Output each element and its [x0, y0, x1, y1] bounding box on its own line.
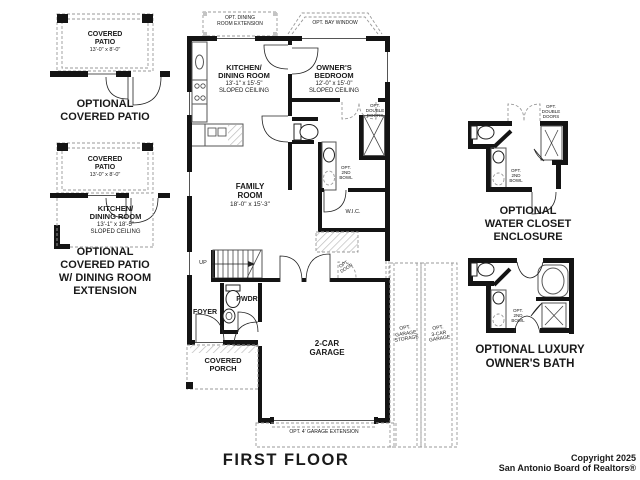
caption-patio-dining-extension: OPTIONAL COVERED PATIO W/ DINING ROOM EX… [28, 246, 182, 298]
family-room-label: FAMILY ROOM 18'-0" x 15'-3" [218, 183, 282, 208]
caption2-line4: EXTENSION [28, 285, 182, 298]
patio2-name-line1: COVERED [55, 156, 155, 164]
caption4-line1: OPTIONAL LUXURY [450, 344, 610, 358]
opt-double-doors-wc-label: OPT. DOUBLE DOORS [537, 104, 565, 119]
caption-optional-covered-patio: OPTIONAL COVERED PATIO [38, 98, 172, 124]
up-label: UP [196, 260, 210, 266]
kitchen-dims: 13'-1" x 15'-5" [208, 81, 280, 88]
opt-double-doors-main-label: OPT. DOUBLE DOORS [361, 103, 389, 118]
patio1-name-line1: COVERED [55, 31, 155, 39]
copyright-line1: Copyright 2025 [420, 453, 636, 463]
kitchen-line2: DINING ROOM [208, 72, 280, 80]
patio2-dims: 13'-0" x 8'-0" [55, 172, 155, 178]
patio2-name-line2: PATIO [55, 164, 155, 172]
bedroom-ceiling: SLOPED CEILING [298, 88, 370, 95]
caption3-line1: OPTIONAL [462, 205, 594, 218]
o2b-main-line3: BOWL [334, 175, 358, 180]
caption1-line2: COVERED PATIO [38, 111, 172, 124]
foyer-label: FOYER [188, 309, 222, 317]
owners-bedroom-label: OWNER'S BEDROOM 12'-0" x 15'-0" SLOPED C… [298, 64, 370, 94]
opt-bay-window-label: OPT. BAY WINDOW [296, 21, 374, 27]
opt-2nd-bowl-wc-label: OPT. 2ND BOWL [504, 168, 528, 183]
caption1-line1: OPTIONAL [38, 98, 172, 111]
covered-porch-label: COVERED PORCH [194, 357, 252, 374]
floorplan-page: .w{fill:#141414;} .tn{stroke:#555;stroke… [0, 0, 640, 480]
o2b-wc-line3: BOWL [504, 178, 528, 183]
ext-kitchen-label: KITCHEN/ DINING ROOM 13'-1" x 18'-5" SLO… [58, 205, 173, 235]
patio1-name-line2: PATIO [55, 39, 155, 47]
page-title: FIRST FLOOR [206, 451, 366, 469]
opt-dining-ext-line2: ROOM EXTENSION [203, 22, 277, 28]
caption4-line2: OWNER'S BATH [450, 358, 610, 372]
patio1-room-label: COVERED PATIO 13'-0" x 8'-0" [55, 31, 155, 53]
wic-label: W.I.C. [336, 209, 370, 215]
family-line2: ROOM [218, 192, 282, 201]
copyright-line2: San Antonio Board of Realtors® [420, 463, 636, 473]
caption2-line3: W/ DINING ROOM [28, 272, 182, 285]
family-dims: 18'-0" x 15'-3" [218, 201, 282, 208]
kitchen-dining-label: KITCHEN/ DINING ROOM 13'-1" x 15'-5" SLO… [208, 64, 280, 94]
o2b-lux-line3: BOWL [506, 318, 530, 323]
odd-wc-line3: DOORS [537, 114, 565, 119]
kitchen-ceiling: SLOPED CEILING [208, 88, 280, 95]
patio2-room-label: COVERED PATIO 13'-0" x 8'-0" [55, 156, 155, 178]
patio1-dims: 13'-0" x 8'-0" [55, 47, 155, 53]
porch-line2: PORCH [194, 365, 252, 373]
opt-garage-extension-label: OPT. 4' GARAGE EXTENSION [262, 430, 386, 436]
caption2-line1: OPTIONAL [28, 246, 182, 259]
caption-water-closet-enclosure: OPTIONAL WATER CLOSET ENCLOSURE [462, 205, 594, 244]
pwdr-label: PWDR [232, 296, 262, 304]
caption2-line2: COVERED PATIO [28, 259, 182, 272]
opt-dining-extension-label: OPT. DINING ROOM EXTENSION [203, 16, 277, 27]
ext-kitchen-line2: DINING ROOM [58, 213, 173, 221]
ext-kitchen-dims: 13'-1" x 18'-5" [58, 222, 173, 229]
opt-2nd-bowl-lux-label: OPT. 2ND BOWL [506, 308, 530, 323]
bedroom-dims: 12'-0" x 15'-0" [298, 81, 370, 88]
garage-line2: GARAGE [298, 349, 356, 358]
ext-kitchen-ceiling: SLOPED CEILING [58, 229, 173, 236]
copyright-notice: Copyright 2025 San Antonio Board of Real… [420, 453, 636, 474]
caption-luxury-owners-bath: OPTIONAL LUXURY OWNER'S BATH [450, 344, 610, 371]
caption3-line2: WATER CLOSET [462, 218, 594, 231]
odd-main-line3: DOORS [361, 113, 389, 118]
caption3-line3: ENCLOSURE [462, 231, 594, 244]
garage-label: 2-CAR GARAGE [298, 340, 356, 358]
bedroom-line2: BEDROOM [298, 72, 370, 80]
opt-2nd-bowl-main-label: OPT. 2ND BOWL [334, 165, 358, 180]
